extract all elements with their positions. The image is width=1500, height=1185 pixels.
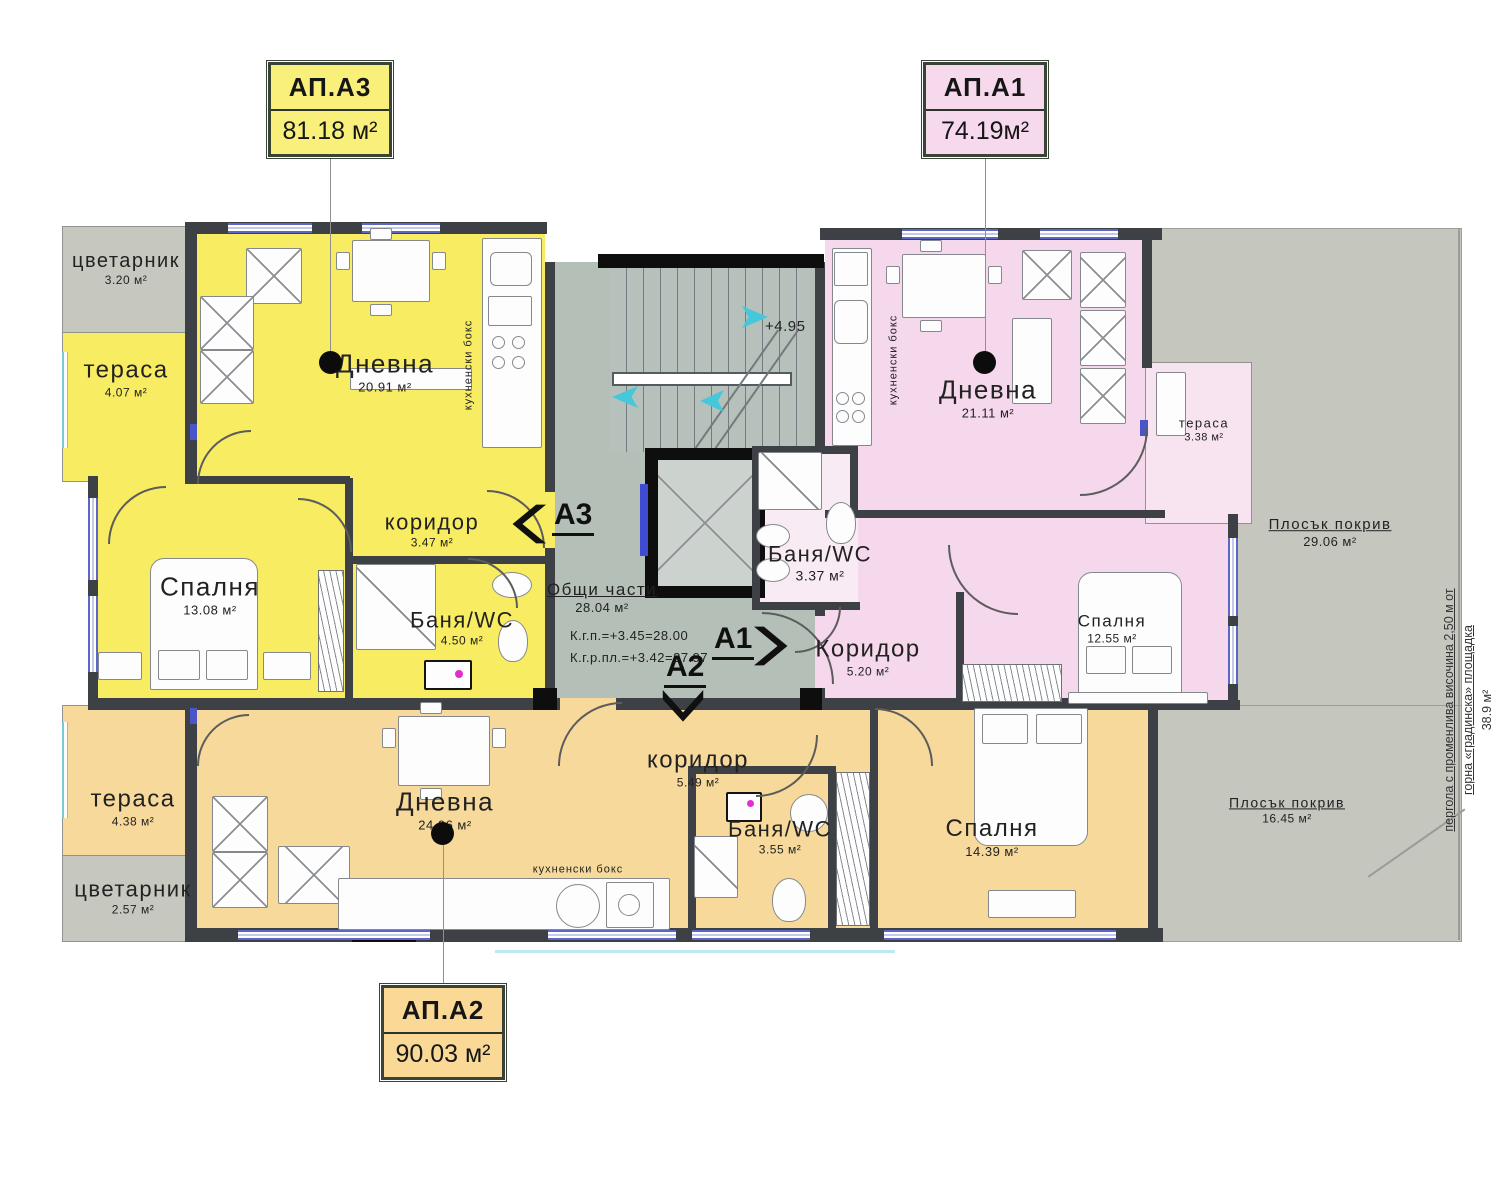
room-area: 5.49 м²: [647, 775, 749, 789]
elevator-cab: [658, 460, 752, 586]
pergola-text-line2: горна «градинска» площадка: [1459, 560, 1478, 860]
kitchen-sink: [556, 884, 600, 928]
window: [1040, 229, 1118, 239]
washing-machine: [424, 660, 472, 690]
wall-segment: [815, 262, 825, 448]
window: [88, 498, 98, 580]
wall-segment: [825, 510, 1165, 518]
room-name: Дневна: [336, 349, 434, 380]
wall-column: [800, 688, 822, 710]
room-name: цветарник: [72, 249, 180, 273]
furniture-chair: [920, 240, 942, 252]
room-name: Баня/WC: [728, 817, 832, 843]
stove-burner: [512, 336, 525, 349]
room-name: Дневна: [939, 375, 1037, 406]
leader-dot-a3: [319, 351, 342, 374]
apartment-tag-a2: АП.А2 90.03 м²: [381, 985, 505, 1080]
wall-segment: [598, 254, 824, 268]
window: [548, 930, 676, 940]
room-label-corridor-a1: Коридор 5.20 м²: [815, 635, 920, 678]
furniture-chair: [886, 266, 900, 284]
room-area: 4.07 м²: [83, 385, 168, 399]
room-label-roof-bottom: Плосък покрив 16.45 м²: [1229, 794, 1345, 825]
room-label-bath-a1: Баня/WC 3.37 м²: [768, 541, 872, 584]
wall-segment: [1148, 705, 1158, 933]
room-label-flowerbed-a3: цветарник 3.20 м²: [72, 249, 180, 287]
door-jamb-mark: [190, 708, 197, 724]
room-label-living-a1: Дневна 21.11 м²: [939, 375, 1037, 422]
furniture-pillow: [206, 650, 248, 680]
stove-burner: [836, 392, 849, 405]
kitchen-hob-ring: [618, 894, 640, 916]
pergola-annotation: пергола с променлива височина 2,50 м от …: [1440, 560, 1496, 860]
room-name: Спалня: [160, 572, 260, 603]
room-area: 29.06 м²: [1269, 534, 1392, 550]
wall-column: [533, 688, 557, 710]
pergola-area: 38.9 м²: [1478, 560, 1497, 860]
apartment-tag-label: АП.А1: [926, 65, 1044, 111]
window: [1228, 626, 1238, 684]
room-name: Спалня: [1078, 612, 1146, 632]
room-name: Баня/WC: [410, 608, 514, 634]
furniture-sofa: [200, 296, 254, 350]
wall-segment: [352, 556, 548, 564]
furniture-sofa: [200, 350, 254, 404]
leader-line-a1: [985, 148, 986, 352]
furniture-chair: [432, 252, 446, 270]
window: [88, 596, 98, 672]
room-area: 16.45 м²: [1229, 811, 1345, 825]
furniture-nightstand: [98, 652, 142, 680]
room-name: тераса: [90, 785, 175, 814]
room-label-bedroom-a2: Спалня 14.39 м²: [946, 815, 1039, 859]
room-label-kitchen-a2: кухненски бокс: [533, 863, 624, 876]
room-area: 21.11 м²: [939, 406, 1037, 422]
room-area: 12.55 м²: [1078, 632, 1146, 646]
room-name: кухненски бокс: [533, 863, 624, 876]
furniture-pillow: [158, 650, 200, 680]
stove-burner: [492, 336, 505, 349]
room-label-kitchen-a3: кухненски бокс: [462, 320, 475, 411]
room-area: 28.04 м²: [547, 600, 657, 616]
furniture-nightstand: [263, 652, 311, 680]
room-label-bath-a2: Баня/WC 3.55 м²: [728, 817, 832, 858]
furniture-dining-table: [902, 254, 986, 318]
room-name: Коридор: [815, 635, 920, 664]
door-jamb-mark: [190, 424, 197, 440]
furniture-armchair: [1022, 250, 1072, 300]
furniture-dining-table: [398, 716, 490, 786]
room-area: 3.38 м²: [1179, 431, 1229, 444]
wardrobe: [962, 664, 1062, 702]
room-area: 13.08 м²: [160, 603, 260, 619]
furniture-sofa: [212, 796, 268, 852]
room-area: 20.91 м²: [336, 380, 434, 396]
room-area: 2.57 м²: [74, 903, 191, 917]
window-sill-line: [495, 950, 895, 953]
furniture-bench: [988, 890, 1076, 918]
wardrobe: [836, 772, 870, 926]
pergola-text-line1: пергола с променлива височина 2,50 м от: [1440, 560, 1459, 860]
room-label-roof-top: Плосък покрив 29.06 м²: [1269, 516, 1392, 550]
wall-segment: [345, 478, 353, 706]
shower-cabin: [758, 452, 822, 510]
furniture-dresser: [1068, 692, 1208, 704]
terrace-glazing: [62, 352, 68, 448]
room-name: коридор: [385, 510, 479, 536]
room-name: кухненски бокс: [887, 315, 900, 406]
room-label-terrace-a1: тераса 3.38 м²: [1179, 416, 1229, 445]
toilet: [772, 878, 806, 922]
furniture-chair: [420, 702, 442, 714]
apartment-tag-area: 81.18 м²: [271, 111, 389, 154]
fixture-dot: [747, 800, 754, 807]
terrace-a3-area: [62, 332, 192, 482]
stove-burner: [492, 356, 505, 369]
toilet: [826, 502, 856, 544]
window: [902, 229, 998, 239]
room-name: Плосък покрив: [1229, 794, 1345, 811]
furniture-chair: [382, 728, 396, 748]
entrance-marker-a3: A3: [552, 498, 594, 536]
leader-line-a3: [330, 148, 331, 352]
furniture-dining-table: [352, 240, 430, 302]
room-label-bath-a3: Баня/WC 4.50 м²: [410, 608, 514, 649]
furniture-chair: [988, 266, 1002, 284]
kitchen-oven: [488, 296, 532, 326]
furniture-chair: [336, 252, 350, 270]
furniture-chair: [492, 728, 506, 748]
stair-level-annotation: +4.95: [765, 318, 805, 335]
elevator-door: [640, 484, 648, 556]
room-name: Спалня: [946, 815, 1039, 844]
kitchen-fridge: [834, 252, 868, 286]
furniture-chair: [370, 228, 392, 240]
floor-plan-canvas: цветарник 3.20 м² тераса 4.07 м² Дневна …: [0, 0, 1500, 1185]
window: [238, 930, 430, 940]
room-label-corridor-a3: коридор 3.47 м²: [385, 510, 479, 551]
room-label-common: Общи части 28.04 м²: [547, 580, 657, 616]
leader-line-a2: [443, 845, 444, 985]
kitchen-sink: [490, 252, 532, 286]
room-area: 3.20 м²: [72, 273, 180, 287]
stove-burner: [512, 356, 525, 369]
room-name: Плосък покрив: [1269, 516, 1392, 534]
furniture-armchair: [246, 248, 302, 304]
room-label-bedroom-a1: Спалня 12.55 м²: [1078, 612, 1146, 647]
room-area: 3.47 м²: [385, 536, 479, 550]
room-name: Дневна: [396, 787, 494, 818]
furniture-pillow: [1086, 646, 1126, 674]
terrace-glazing: [62, 722, 68, 818]
terrace-a2-area: [62, 705, 192, 857]
stove-burner: [852, 410, 865, 423]
room-label-flowerbed-a2: цветарник 2.57 м²: [74, 877, 191, 918]
room-area: 14.39 м²: [946, 844, 1039, 860]
apartment-tag-a1: АП.А1 74.19м²: [923, 62, 1047, 157]
window: [228, 223, 312, 233]
furniture-pillow: [1036, 714, 1082, 744]
furniture-pillow: [1132, 646, 1172, 674]
wardrobe: [318, 570, 344, 692]
furniture-sofa: [1080, 368, 1126, 424]
window: [692, 930, 810, 940]
room-label-terrace-a2: тераса 4.38 м²: [90, 785, 175, 828]
leader-dot-a2: [431, 822, 454, 845]
entrance-marker-a2: A2: [664, 650, 706, 688]
window: [1228, 538, 1238, 616]
room-area: 3.37 м²: [768, 568, 872, 585]
room-name: тераса: [83, 356, 168, 385]
room-label-kitchen-a1: кухненски бокс: [887, 315, 900, 406]
room-area: 5.20 м²: [815, 664, 920, 678]
stove-burner: [852, 392, 865, 405]
leader-dot-a1: [973, 351, 996, 374]
apartment-tag-area: 74.19м²: [926, 111, 1044, 154]
furniture-sofa: [1080, 310, 1126, 366]
fixture-dot: [455, 670, 463, 678]
room-name: Общи части: [547, 580, 657, 600]
room-area: 4.38 м²: [90, 814, 175, 828]
room-name: коридор: [647, 746, 749, 775]
apartment-tag-label: АП.А3: [271, 65, 389, 111]
room-area: 3.55 м²: [728, 843, 832, 857]
level-annotation: К.г.п.=+3.45=28.00: [570, 628, 688, 643]
furniture-sofa: [212, 852, 268, 908]
entrance-marker-a1: A1: [712, 622, 754, 660]
room-label-terrace-a3: тераса 4.07 м²: [83, 356, 168, 399]
kitchen-sink: [834, 300, 868, 344]
furniture-sofa: [1080, 252, 1126, 308]
room-area: 4.50 м²: [410, 634, 514, 648]
furniture-chair: [920, 320, 942, 332]
stove-burner: [836, 410, 849, 423]
apartment-tag-area: 90.03 м²: [384, 1034, 502, 1077]
wall-segment: [850, 446, 858, 516]
apartment-tag-label: АП.А2: [384, 988, 502, 1034]
room-label-bedroom-a3: Спалня 13.08 м²: [160, 572, 260, 619]
room-label-corridor-a2: коридор 5.49 м²: [647, 746, 749, 789]
furniture-chair: [370, 304, 392, 316]
room-label-living-a3: Дневна 20.91 м²: [336, 349, 434, 396]
apartment-tag-a3: АП.А3 81.18 м²: [268, 62, 392, 157]
wall-segment: [545, 262, 555, 702]
room-name: кухненски бокс: [462, 320, 475, 411]
furniture-pillow: [982, 714, 1028, 744]
room-name: тераса: [1179, 416, 1229, 432]
wall-segment: [185, 222, 197, 484]
wall-segment: [1142, 236, 1152, 368]
window: [884, 930, 1116, 940]
room-name: цветарник: [74, 877, 191, 903]
room-name: Баня/WC: [768, 541, 872, 567]
